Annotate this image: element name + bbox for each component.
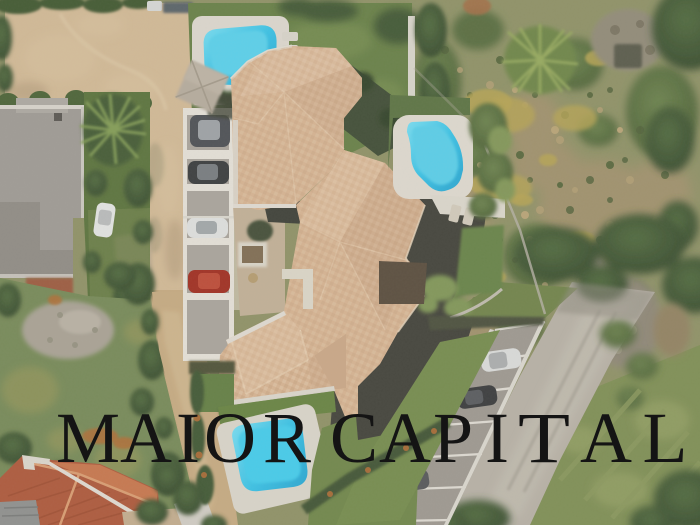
- svg-text:MAIORCAPITAL: MAIORCAPITAL: [56, 398, 688, 478]
